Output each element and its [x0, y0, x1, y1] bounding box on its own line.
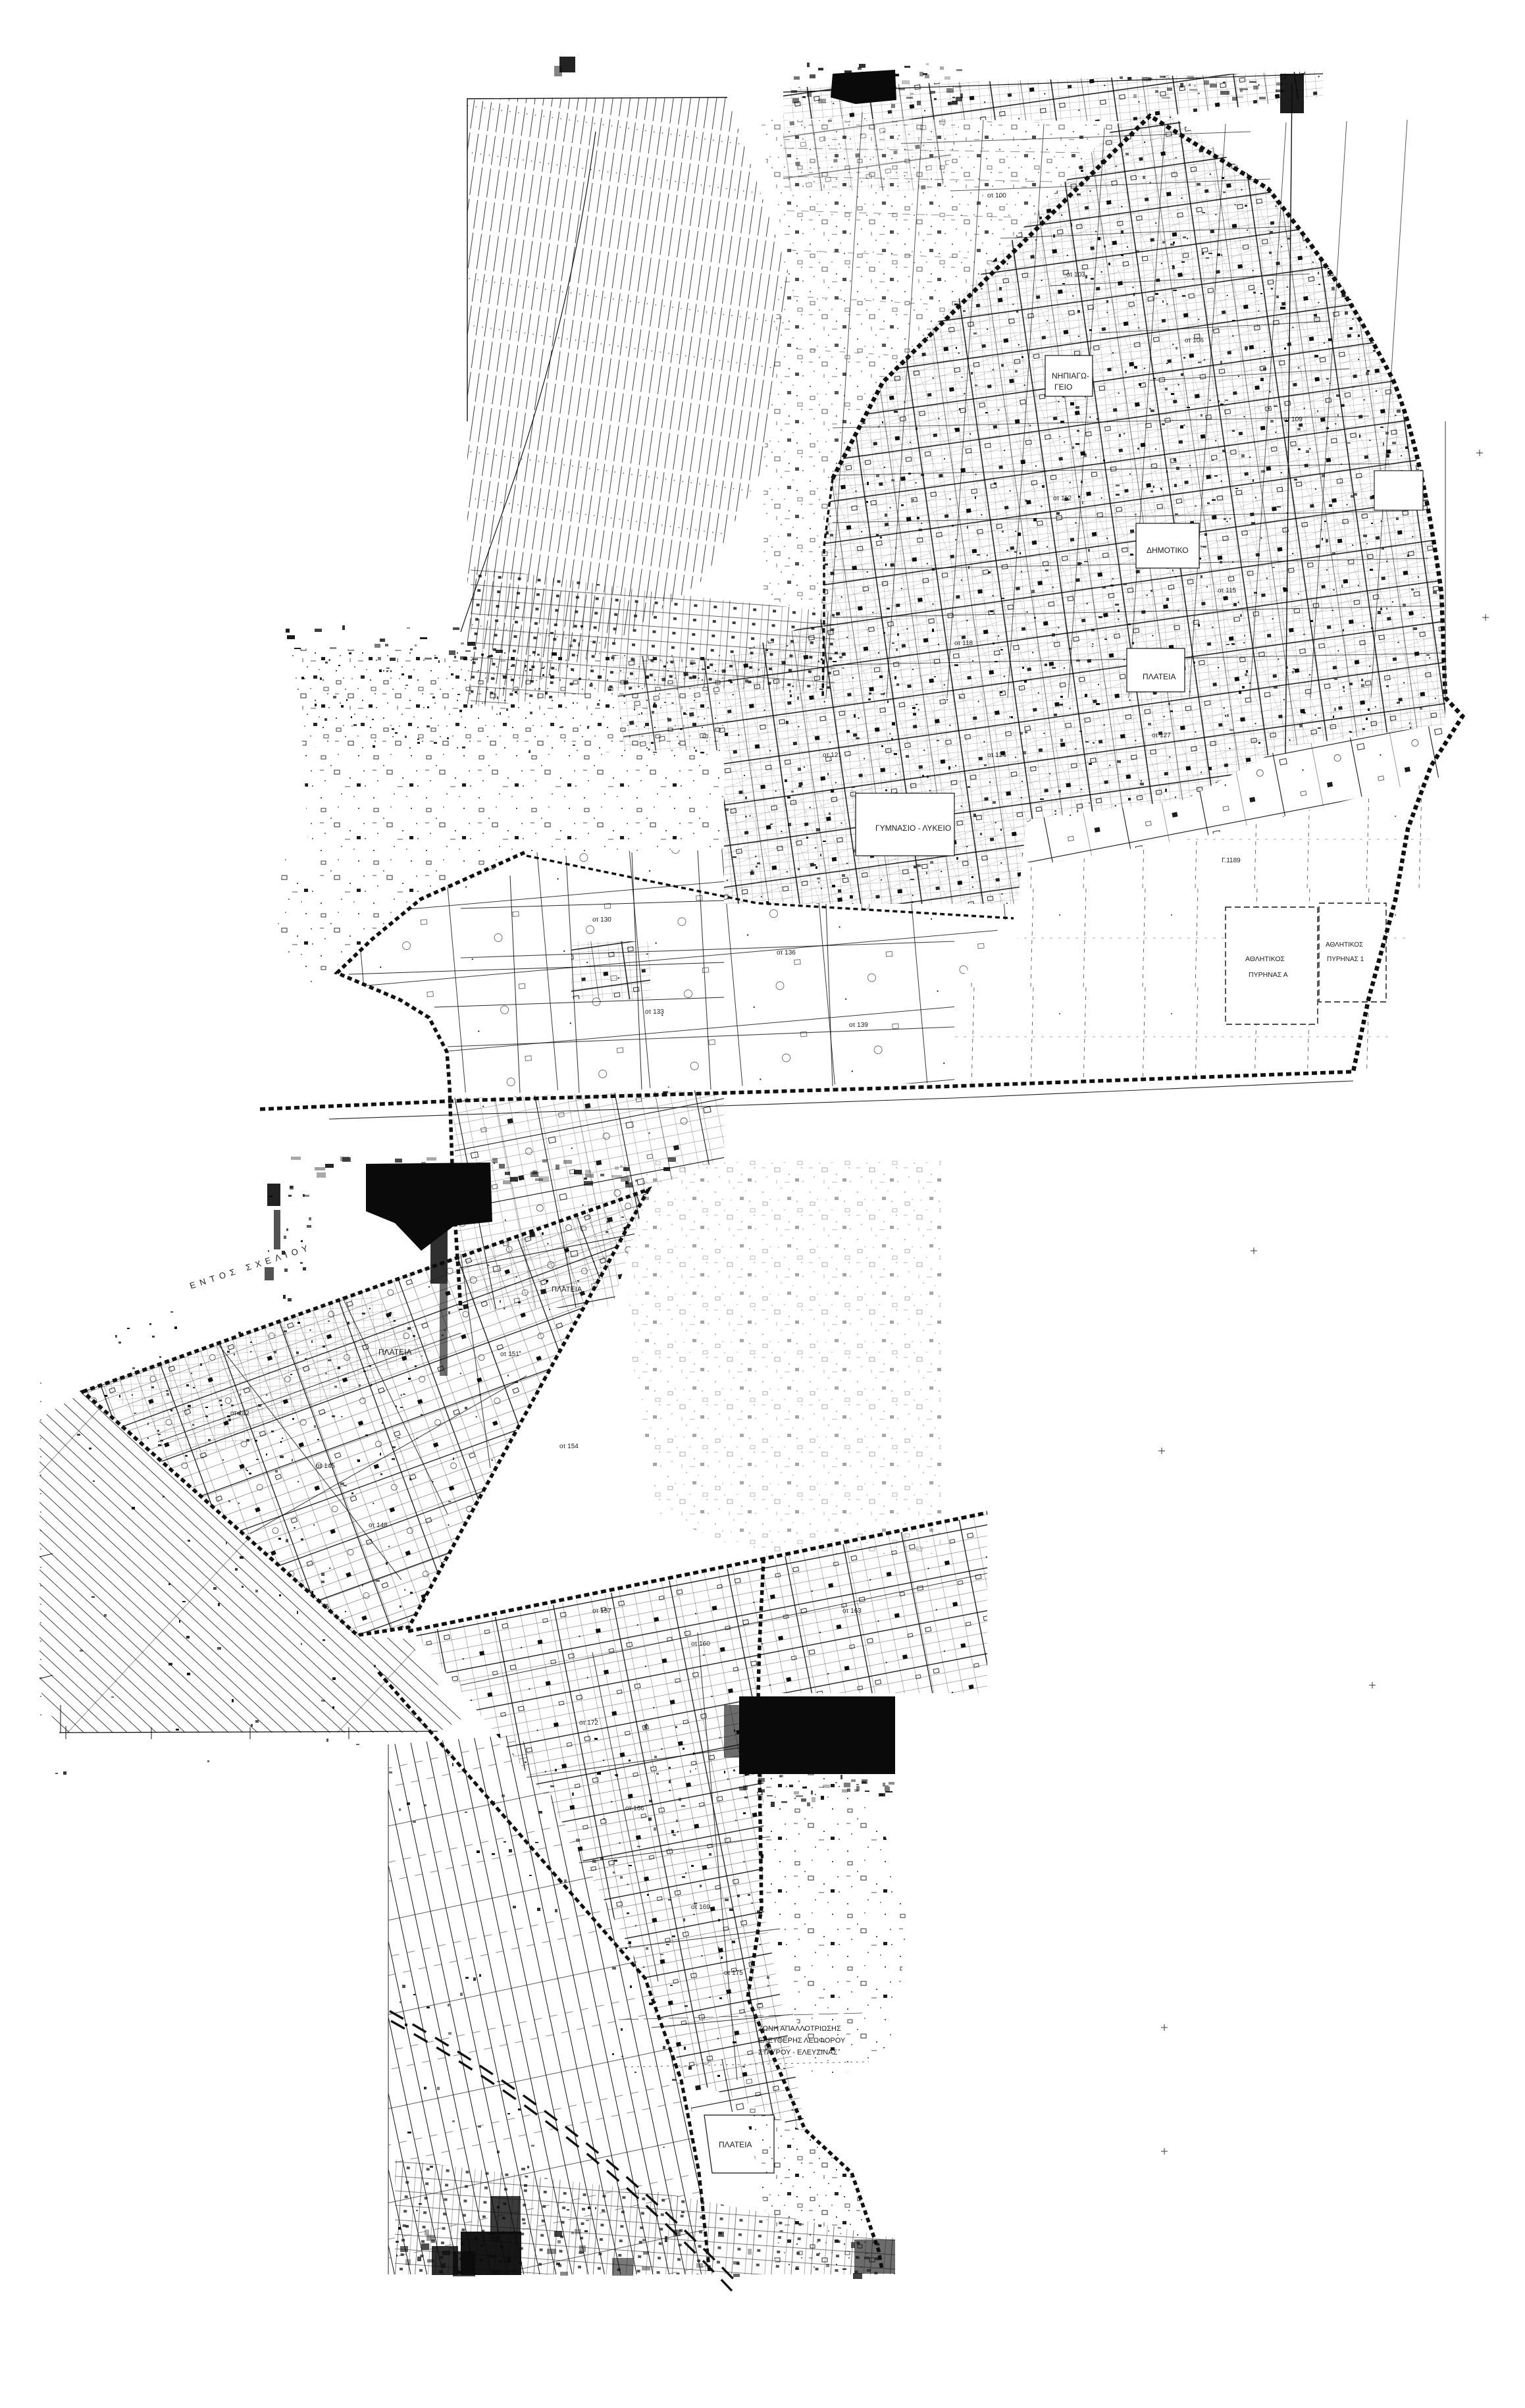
- svg-text:οτ 157: οτ 157: [592, 1608, 611, 1615]
- svg-text:οτ 133: οτ 133: [645, 1008, 664, 1016]
- svg-text:οτ 154: οτ 154: [559, 1443, 579, 1450]
- svg-text:ΓΕΙΟ: ΓΕΙΟ: [1054, 382, 1072, 392]
- svg-text:οτ 106: οτ 106: [1185, 337, 1204, 344]
- svg-text:οτ 148: οτ 148: [369, 1522, 388, 1529]
- svg-text:οτ 139: οτ 139: [849, 1022, 868, 1029]
- svg-text:ΠΥΡΗΝΑΣ Α: ΠΥΡΗΝΑΣ Α: [1249, 971, 1288, 979]
- svg-text:οτ 163: οτ 163: [842, 1608, 862, 1615]
- svg-text:οτ 100: οτ 100: [987, 192, 1006, 199]
- svg-text:οτ 172: οτ 172: [579, 1719, 598, 1727]
- svg-text:οτ 142: οτ 142: [230, 1410, 249, 1417]
- svg-text:οτ 160: οτ 160: [691, 1640, 710, 1648]
- svg-text:οτ 130: οτ 130: [592, 916, 611, 924]
- svg-text:οτ 118: οτ 118: [954, 640, 973, 647]
- svg-text:οτ 166: οτ 166: [625, 1805, 644, 1812]
- svg-text:οτ 124: οτ 124: [987, 752, 1006, 759]
- svg-text:ΔΗΜΟΤΙΚΟ: ΔΗΜΟΤΙΚΟ: [1147, 546, 1189, 555]
- svg-text:οτ 169: οτ 169: [691, 1904, 710, 1911]
- svg-text:ΠΛΑΤΕΙΑ: ΠΛΑΤΕΙΑ: [719, 2140, 752, 2149]
- svg-text:οτ 175: οτ 175: [724, 1970, 743, 1977]
- svg-text:ΓΥΜΝΑΣΙΟ - ΛΥΚΕΙΟ: ΓΥΜΝΑΣΙΟ - ΛΥΚΕΙΟ: [875, 824, 951, 833]
- svg-text:οτ 121: οτ 121: [823, 752, 842, 759]
- svg-text:ΑΘΛΗΤΙΚΟΣ: ΑΘΛΗΤΙΚΟΣ: [1245, 955, 1285, 963]
- svg-text:οτ 109: οτ 109: [1283, 416, 1303, 423]
- svg-text:οτ 136: οτ 136: [777, 949, 796, 956]
- svg-text:ΝΗΠΙΑΓΩ-: ΝΗΠΙΑΓΩ-: [1052, 371, 1089, 380]
- svg-text:οτ 127: οτ 127: [1152, 732, 1171, 739]
- svg-text:ΠΛΑΤΕΙΑ: ΠΛΑΤΕΙΑ: [378, 1348, 411, 1357]
- svg-text:οτ 103: οτ 103: [1066, 271, 1085, 278]
- svg-text:Γ.1189: Γ.1189: [1222, 857, 1241, 864]
- svg-text:ΠΥΡΗΝΑΣ 1: ΠΥΡΗΝΑΣ 1: [1327, 956, 1364, 963]
- svg-text:οτ 151: οτ 151: [500, 1351, 519, 1358]
- svg-text:οτ 115: οτ 115: [1218, 587, 1237, 594]
- svg-text:ΠΛΑΤΕΙΑ: ΠΛΑΤΕΙΑ: [552, 1286, 582, 1294]
- svg-text:οτ 112: οτ 112: [1053, 495, 1072, 502]
- svg-text:ΑΘΛΗΤΙΚΟΣ: ΑΘΛΗΤΙΚΟΣ: [1326, 941, 1363, 949]
- svg-text:οτ 145: οτ 145: [316, 1463, 335, 1470]
- svg-text:ΠΛΑΤΕΙΑ: ΠΛΑΤΕΙΑ: [1143, 672, 1176, 681]
